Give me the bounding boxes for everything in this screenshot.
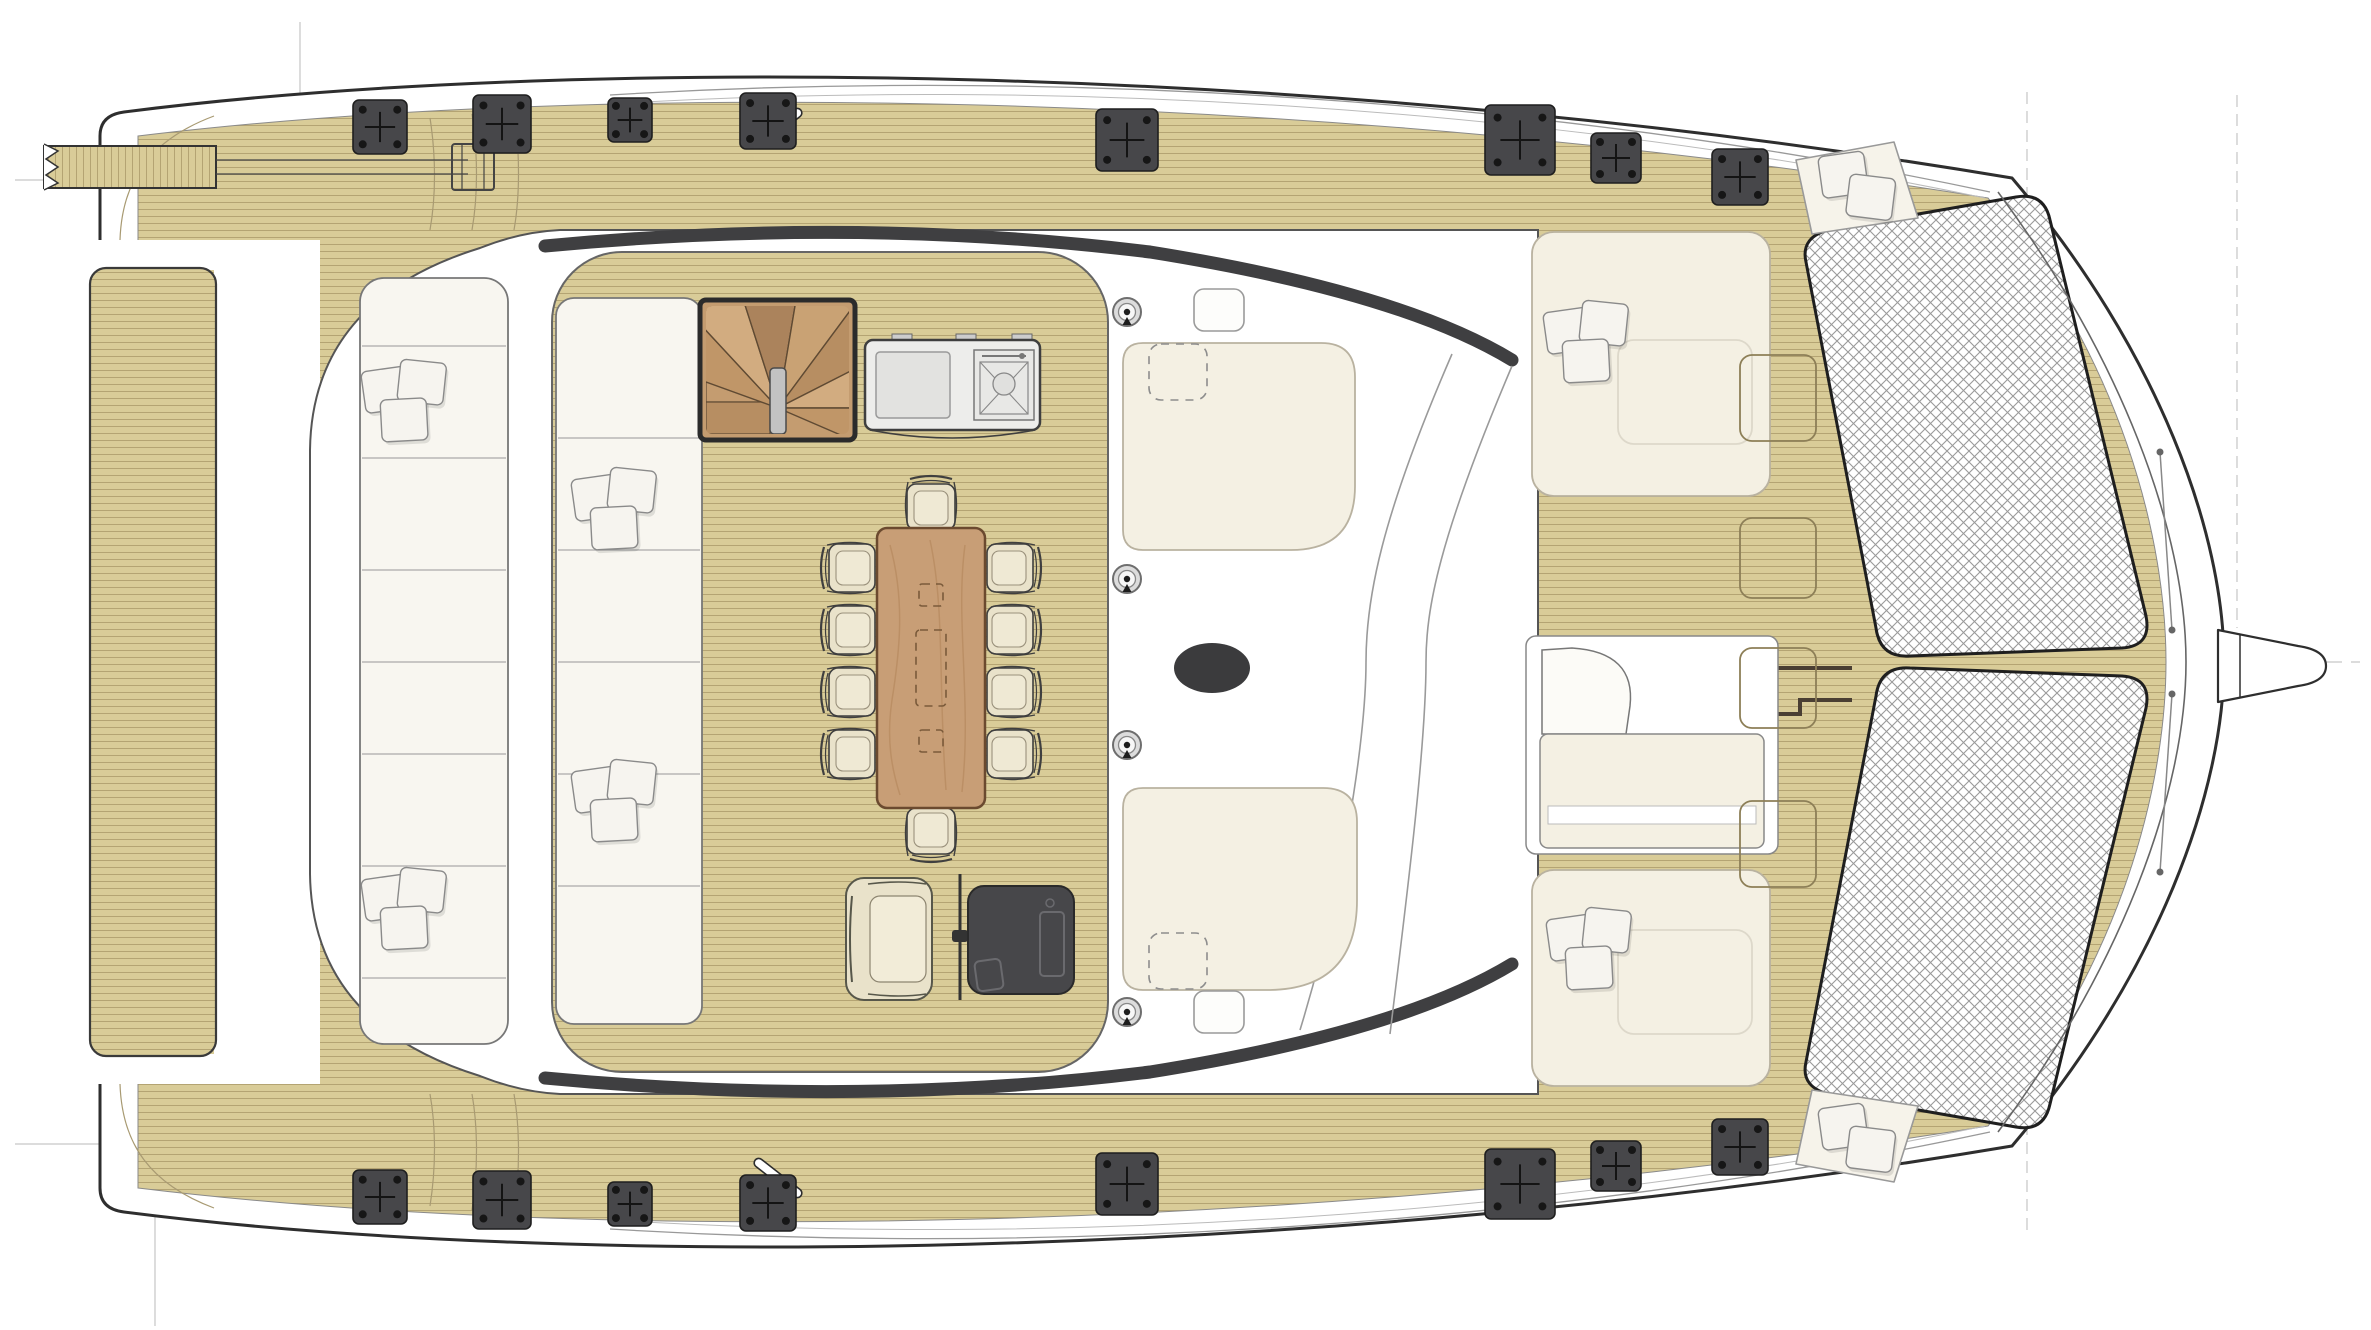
pillow	[590, 506, 641, 554]
passerelle-gangway	[44, 146, 216, 188]
galley-counter	[876, 352, 950, 418]
platform-gap-side	[214, 240, 320, 1084]
dining-chair	[987, 667, 1041, 718]
sunpad-center-aft	[1123, 788, 1357, 990]
dining-chair	[821, 605, 875, 656]
bench-seat	[1540, 734, 1764, 848]
pillow	[380, 906, 431, 954]
pillow	[1845, 174, 1899, 225]
deck-plan	[0, 0, 2371, 1330]
mast-base	[1174, 643, 1250, 693]
winch-pad	[740, 1175, 796, 1231]
armchair	[846, 878, 932, 1000]
dining-table	[877, 528, 985, 808]
galley-unit	[865, 334, 1040, 438]
dining-chair	[821, 543, 875, 594]
winch-pad	[353, 100, 407, 154]
pillow	[1565, 946, 1616, 994]
pillow	[590, 798, 641, 846]
winch-pad	[1712, 1119, 1768, 1175]
cockpit	[360, 252, 1108, 1072]
deck-ring	[1113, 565, 1141, 593]
console-unit	[968, 886, 1074, 994]
pillow	[1845, 1126, 1899, 1177]
winch-pad	[1485, 1149, 1555, 1219]
winch-pad	[353, 1170, 407, 1224]
winch-pad	[1096, 1153, 1158, 1215]
winch-pad	[608, 98, 652, 142]
deck-hatch	[1194, 991, 1244, 1033]
stair-center-pole	[770, 368, 786, 434]
winch-pad	[473, 1171, 531, 1229]
pillow	[380, 398, 431, 446]
bowsprit	[2218, 630, 2326, 702]
pillow	[1562, 339, 1613, 387]
winch-pad	[473, 95, 531, 153]
winch-pad	[1712, 149, 1768, 205]
deck-ring	[1113, 298, 1141, 326]
dining-chair	[821, 667, 875, 718]
dining-chair	[987, 605, 1041, 656]
deck-ring	[1113, 731, 1141, 759]
deck-plan-drawing	[0, 0, 2371, 1330]
aft-teak-platform	[90, 268, 216, 1056]
winch-pad	[1485, 105, 1555, 175]
dining-chair	[906, 476, 957, 530]
dining-chair	[987, 729, 1041, 780]
bench-seam	[1548, 806, 1756, 824]
dining-chair	[987, 543, 1041, 594]
lounge-inner-bench	[556, 298, 702, 1024]
deck-hatch	[1194, 289, 1244, 331]
winch-pad	[1096, 109, 1158, 171]
tv-pole-mount	[952, 930, 968, 942]
galley-sink	[974, 350, 1034, 420]
winch-pad	[1591, 1141, 1641, 1191]
winch-pad	[1591, 133, 1641, 183]
faucet-knob	[1019, 353, 1025, 359]
deck-ring	[1113, 998, 1141, 1026]
sunpad-center-fwd	[1123, 343, 1355, 550]
winch-pad	[740, 93, 796, 149]
gangway-break-symbol	[44, 144, 58, 190]
dining-chair	[821, 729, 875, 780]
dining-chair	[906, 808, 957, 862]
winch-pad	[608, 1182, 652, 1226]
